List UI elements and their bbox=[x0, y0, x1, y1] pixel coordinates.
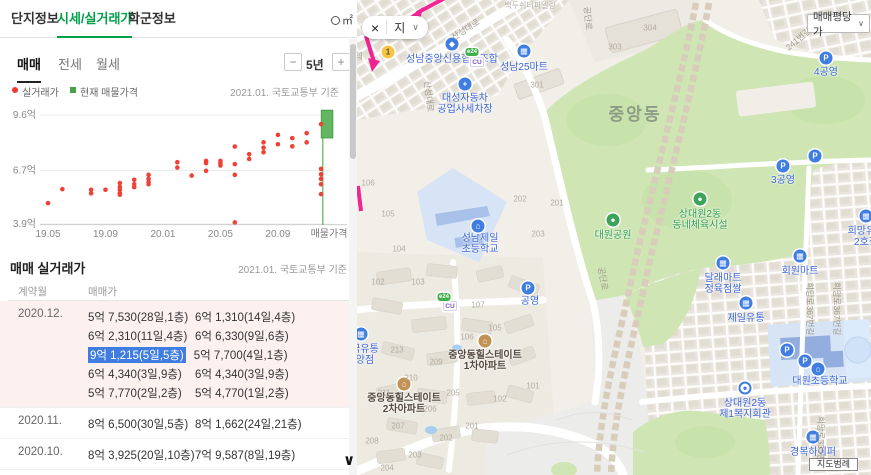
chart-point[interactable] bbox=[132, 185, 137, 190]
price-cell[interactable]: 6억 4,340(3일,9층) bbox=[88, 366, 195, 382]
building-number: 209 bbox=[429, 358, 442, 367]
building-number: 106 bbox=[361, 179, 374, 188]
building-number: 102 bbox=[371, 278, 384, 287]
chart-point[interactable] bbox=[118, 192, 123, 197]
section-title: 매매 실거래가 bbox=[10, 258, 85, 277]
chart-point[interactable] bbox=[175, 160, 180, 165]
section-source-note: 2021.01. 국토교통부 기준 bbox=[238, 261, 347, 276]
transactions-table: 2020.12.5억 7,530(28일,1층)6억 1,310(14일,4층)… bbox=[0, 301, 349, 475]
scrollbar-thumb[interactable] bbox=[350, 44, 356, 159]
chart-point[interactable] bbox=[46, 201, 51, 206]
map-poi-label[interactable]: 달래마트정육점쌀 bbox=[705, 274, 742, 295]
mart-map-icon[interactable]: ▦ bbox=[860, 210, 871, 223]
building-number: 105 bbox=[488, 324, 501, 333]
contract-month: 2020.11. bbox=[18, 415, 62, 427]
chart-point[interactable] bbox=[304, 140, 309, 145]
map-poi-label[interactable]: 중앙동 bbox=[609, 110, 662, 121]
chart-point[interactable] bbox=[103, 187, 108, 192]
svg-text:20.05: 20.05 bbox=[208, 229, 233, 240]
map-poi-label[interactable]: 성남25마트 bbox=[500, 63, 548, 74]
road-label: 레 bbox=[357, 50, 363, 62]
divider bbox=[386, 21, 387, 34]
map-poi-label[interactable]: 제일유통 bbox=[728, 314, 765, 325]
chart-point[interactable] bbox=[319, 192, 324, 197]
chart-point[interactable] bbox=[175, 165, 180, 170]
table-row: 2020.12.5억 7,530(28일,1층)6억 1,310(14일,4층)… bbox=[0, 301, 349, 408]
chart-point[interactable] bbox=[233, 173, 238, 178]
svg-text:19.05: 19.05 bbox=[35, 229, 60, 240]
real-price-dot-icon bbox=[12, 87, 18, 93]
map-poi-label[interactable]: 경복하이퍼 bbox=[790, 448, 836, 459]
table-row: 2020.10.8억 3,925(20일,10층)7억 9,587(8일,19층… bbox=[0, 439, 349, 470]
price-cell-selected[interactable]: 9억 1,215(5일,5층) bbox=[88, 347, 186, 363]
chart-point[interactable] bbox=[146, 182, 151, 187]
road-label: 희망로367번길 bbox=[804, 282, 816, 335]
chart-point[interactable] bbox=[233, 144, 238, 149]
price-cell[interactable]: 8억 3,925(20일,10층) bbox=[88, 447, 195, 463]
p-map-icon[interactable]: P bbox=[781, 344, 794, 357]
chart-point[interactable] bbox=[204, 161, 209, 166]
car-map-icon[interactable]: + bbox=[459, 78, 472, 91]
chart-point[interactable] bbox=[276, 142, 281, 147]
svg-text:20.09: 20.09 bbox=[265, 229, 290, 240]
listing-price-square-icon bbox=[70, 87, 76, 93]
chart-point[interactable] bbox=[319, 122, 324, 127]
price-cell[interactable]: 8억 1,662(24일,21층) bbox=[195, 416, 302, 432]
building-number: 304 bbox=[643, 24, 656, 33]
chart-point[interactable] bbox=[132, 177, 137, 182]
building-number: 202 bbox=[439, 434, 452, 443]
map-poi-label[interactable]: 희망유통2호점 bbox=[848, 227, 871, 248]
map-poi-label[interactable]: 회원마트 bbox=[782, 267, 819, 278]
map-poi-label[interactable]: 중앙동힐스테이트1차아파트 bbox=[448, 351, 522, 372]
mart-map-icon[interactable]: ▦ bbox=[717, 257, 730, 270]
chart-point[interactable] bbox=[146, 173, 151, 178]
building-number: 101 bbox=[526, 382, 539, 391]
refresh-icon bbox=[331, 16, 340, 25]
building-number: 202 bbox=[513, 195, 526, 204]
chart-point[interactable] bbox=[233, 162, 238, 167]
column-contract-month: 계약월 bbox=[18, 284, 47, 299]
unit-label: ㎡ bbox=[342, 12, 353, 28]
map-poi-label[interactable]: 대원초등학교 bbox=[792, 377, 847, 388]
price-cell[interactable]: 6억 6,330(9일,6층) bbox=[195, 328, 302, 344]
building-number: 213 bbox=[390, 346, 403, 355]
map-poi-label[interactable]: 대원공원 bbox=[595, 231, 632, 242]
period-value: 5년 bbox=[306, 56, 324, 73]
map-legend-button[interactable]: 지도범례 bbox=[809, 458, 858, 471]
tab-0[interactable]: 단지정보 bbox=[11, 0, 59, 38]
close-dropdown-label: 지 bbox=[394, 19, 405, 36]
map-close-control[interactable]: × 지 ∨ bbox=[362, 16, 428, 39]
trade-tab-2[interactable]: 월세 bbox=[96, 54, 120, 73]
building-number: 201 bbox=[465, 422, 478, 431]
tab-1[interactable]: 시세/실거래가 bbox=[57, 0, 132, 38]
road-label: 공단로 bbox=[581, 6, 595, 30]
detail-panel: 단지정보시세/실거래가학군정보 ㎡ 매매전세월세 − 5년 + 실거래가 현재 … bbox=[0, 0, 357, 475]
chart-point[interactable] bbox=[319, 167, 324, 172]
map-poi-label[interactable]: 4공영 bbox=[814, 68, 838, 79]
map-poi-label[interactable]: 공영 bbox=[521, 297, 539, 308]
building-number: 106 bbox=[460, 333, 473, 342]
building-number: 303 bbox=[608, 43, 621, 52]
scroll-down-chevron-icon[interactable]: ∨ bbox=[343, 451, 355, 469]
road-label: 희망로367번길 bbox=[831, 282, 843, 335]
svg-text:9.6억: 9.6억 bbox=[13, 109, 36, 121]
cu-map-icon[interactable]: CU bbox=[443, 301, 457, 311]
building-number: 104 bbox=[392, 245, 405, 254]
building-number: 206 bbox=[423, 405, 436, 414]
price-mode-label: 매매평당가 bbox=[813, 9, 858, 39]
contract-month: 2020.12. bbox=[18, 308, 63, 320]
price-cell[interactable]: 5억 7,770(2일,2층) bbox=[88, 385, 195, 401]
price-cell[interactable]: 7억 9,587(8일,19층) bbox=[195, 447, 302, 463]
apt-map-icon[interactable]: ⌂ bbox=[479, 335, 492, 348]
price-chart[interactable]: 9.6억6.7억3.9억19.0519.0920.0120.0520.09매물가… bbox=[0, 95, 349, 245]
svg-text:매물가격: 매물가격 bbox=[311, 227, 348, 240]
chart-point[interactable] bbox=[319, 182, 324, 187]
building-number: 102 bbox=[493, 395, 506, 404]
chart-point[interactable] bbox=[290, 144, 295, 149]
app-window: 단지정보시세/실거래가학군정보 ㎡ 매매전세월세 − 5년 + 실거래가 현재 … bbox=[0, 0, 871, 475]
e24-map-icon[interactable]: e24 bbox=[438, 293, 451, 301]
chart-point[interactable] bbox=[60, 187, 65, 192]
building-number: 203 bbox=[408, 451, 421, 460]
e24-map-icon[interactable]: e24 bbox=[466, 48, 479, 56]
school-map-icon[interactable]: ⌂ bbox=[812, 363, 825, 376]
map-poi-label[interactable]: 성남제일초등학교 bbox=[462, 234, 499, 255]
building-number: 204 bbox=[380, 464, 393, 473]
price-mode-dropdown[interactable]: 매매평당가 ∨ bbox=[807, 14, 870, 33]
period-minus-button[interactable]: − bbox=[284, 53, 302, 71]
column-price: 매매가 bbox=[88, 284, 117, 299]
chart-point[interactable] bbox=[319, 177, 324, 182]
price-cell[interactable]: 8억 6,500(30일,5층) bbox=[88, 416, 195, 432]
close-icon[interactable]: × bbox=[371, 20, 379, 36]
chart-point[interactable] bbox=[247, 157, 252, 162]
building-number: 301 bbox=[530, 81, 543, 90]
p-map-icon[interactable]: P bbox=[809, 150, 822, 163]
price-cell[interactable]: 6억 4,340(3일,9층) bbox=[195, 366, 302, 382]
price-cell[interactable]: 6억 2,310(11일,4층) bbox=[88, 328, 195, 344]
chart-point[interactable] bbox=[189, 173, 194, 178]
chevron-down-icon: ∨ bbox=[858, 19, 864, 28]
tab-2[interactable]: 학군정보 bbox=[128, 0, 176, 38]
welfare-map-icon[interactable]: ● bbox=[739, 382, 752, 395]
unit-toggle-button[interactable]: ㎡ bbox=[331, 12, 353, 28]
building-number: 208 bbox=[365, 437, 378, 446]
chart-point[interactable] bbox=[290, 136, 295, 141]
tab-bar: 단지정보시세/실거래가학군정보 bbox=[0, 0, 357, 38]
mart-map-icon[interactable]: ▦ bbox=[740, 297, 753, 310]
building-number: 201 bbox=[550, 199, 563, 208]
chart-point[interactable] bbox=[89, 191, 94, 196]
price-cell[interactable]: 5억 4,770(1일,2층) bbox=[195, 385, 302, 401]
map-poi-label[interactable]: 상대원2동제1복지회관 bbox=[719, 399, 771, 420]
price-cell[interactable]: 5억 7,530(28일,1층) bbox=[88, 309, 195, 325]
map-panel[interactable]: 성남중앙신용협동조합성남25마트대성자동차공업사세차장성남제일초등학교중앙동대원… bbox=[357, 0, 871, 475]
chart-point[interactable] bbox=[204, 169, 209, 174]
p-map-icon[interactable]: P bbox=[799, 355, 812, 368]
table-row: 2020.11.8억 6,500(30일,5층)8억 1,662(24일,21층… bbox=[0, 408, 349, 439]
period-plus-button[interactable]: + bbox=[332, 53, 350, 71]
price-cell[interactable]: 5억 7,700(4일,1층) bbox=[194, 347, 301, 363]
map-poi-label[interactable]: 대성자동차공업사세차장 bbox=[437, 94, 492, 115]
table-header: 계약월 매매가 bbox=[0, 284, 349, 300]
p-map-icon[interactable]: P bbox=[522, 282, 535, 295]
mart-map-icon[interactable]: ▦ bbox=[518, 45, 531, 58]
chart-point[interactable] bbox=[319, 172, 324, 177]
building-number: 207 bbox=[391, 422, 404, 431]
chart-point[interactable] bbox=[261, 150, 266, 155]
svg-text:3.9억: 3.9억 bbox=[13, 218, 36, 230]
building-number: 203 bbox=[531, 230, 544, 239]
trade-tab-1[interactable]: 전세 bbox=[58, 54, 82, 73]
map-poi-label[interactable]: 국유통앙점 bbox=[357, 345, 379, 366]
svg-text:19.09: 19.09 bbox=[93, 229, 118, 240]
chart-point[interactable] bbox=[218, 163, 223, 168]
map-poi-label[interactable]: 성남중앙신용협동조합 bbox=[406, 55, 498, 66]
mart-map-icon[interactable]: ▦ bbox=[794, 250, 807, 263]
contract-month: 2020.10. bbox=[18, 446, 63, 458]
chart-point[interactable] bbox=[247, 152, 252, 157]
chart-point[interactable] bbox=[304, 131, 309, 136]
price-cell[interactable]: 6억 1,310(14일,4층) bbox=[195, 309, 302, 325]
building-number: 211 bbox=[378, 389, 391, 398]
p-map-icon[interactable]: P bbox=[777, 160, 790, 173]
building-number: 105 bbox=[381, 210, 394, 219]
bus1-map-icon[interactable]: 1 bbox=[382, 46, 395, 59]
chart-point[interactable] bbox=[233, 220, 238, 225]
building-number: 107 bbox=[471, 301, 484, 310]
cu-map-icon[interactable]: CU bbox=[470, 57, 484, 67]
map-poi-label[interactable]: 백두쉬터피델링 bbox=[504, 1, 556, 12]
chevron-down-icon: ∨ bbox=[412, 22, 419, 33]
p-map-icon[interactable]: P bbox=[820, 52, 833, 65]
svg-text:6.7억: 6.7억 bbox=[13, 164, 36, 176]
chart-point[interactable] bbox=[261, 140, 266, 145]
trade-tab-0[interactable]: 매매 bbox=[17, 54, 41, 83]
svg-text:20.01: 20.01 bbox=[150, 229, 175, 240]
green-map-icon[interactable]: ● bbox=[607, 214, 620, 227]
green-map-icon[interactable]: ● bbox=[694, 193, 707, 206]
school-map-icon[interactable]: ⌂ bbox=[472, 220, 485, 233]
map-poi-label[interactable]: 상대원2동동네체육시설 bbox=[672, 210, 727, 231]
building-number: 205 bbox=[446, 389, 459, 398]
building-number: 103 bbox=[411, 278, 424, 287]
map-poi-label[interactable]: 3공영 bbox=[771, 176, 795, 187]
chart-point[interactable] bbox=[261, 145, 266, 150]
chart-point[interactable] bbox=[276, 133, 281, 138]
building-number: 210 bbox=[404, 374, 417, 383]
table-row: 2020.09.7억 8,000(28일,13층)7억 5,384(21일,13… bbox=[0, 470, 349, 475]
